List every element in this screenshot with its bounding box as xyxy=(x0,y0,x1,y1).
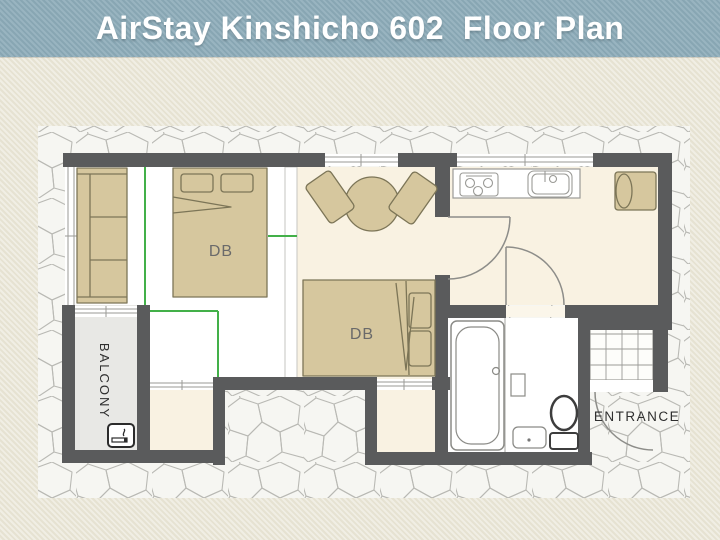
bed2-label: DB xyxy=(350,326,374,343)
window-kitchen xyxy=(457,154,593,166)
washing-machine xyxy=(615,172,656,210)
bed1-label: DB xyxy=(209,243,233,260)
page-title: AirStay Kinshicho 602 Floor Plan xyxy=(96,10,625,47)
kitchen-counter xyxy=(453,169,580,198)
window-under-bed2 xyxy=(377,379,432,390)
balcony-sliding-door xyxy=(75,306,137,317)
bath-shelf xyxy=(511,374,525,396)
window-top-left xyxy=(325,154,398,166)
washbasin-icon xyxy=(513,427,546,448)
window-closet xyxy=(150,380,213,390)
floor-plan: DB DB BALCONY ENTRANCE xyxy=(0,0,720,540)
bedroom-partition-wall xyxy=(285,167,297,378)
window-left-wall xyxy=(65,167,77,305)
smoking-area-icon xyxy=(108,424,134,447)
page-background: DB DB BALCONY ENTRANCE AirStay Kinshicho… xyxy=(0,0,720,540)
stove-icon xyxy=(460,173,498,196)
bathtub xyxy=(451,321,504,450)
balcony-label: BALCONY xyxy=(97,343,112,419)
toilet-icon xyxy=(550,396,578,449)
title-bar: AirStay Kinshicho 602 Floor Plan xyxy=(0,0,720,57)
entrance-label: ENTRANCE xyxy=(594,409,680,424)
sofa xyxy=(77,168,127,303)
sink-icon xyxy=(528,171,572,197)
double-bed-1 xyxy=(173,168,267,297)
washroom-door-opening xyxy=(506,306,565,317)
entrance-door-opening xyxy=(590,380,653,392)
